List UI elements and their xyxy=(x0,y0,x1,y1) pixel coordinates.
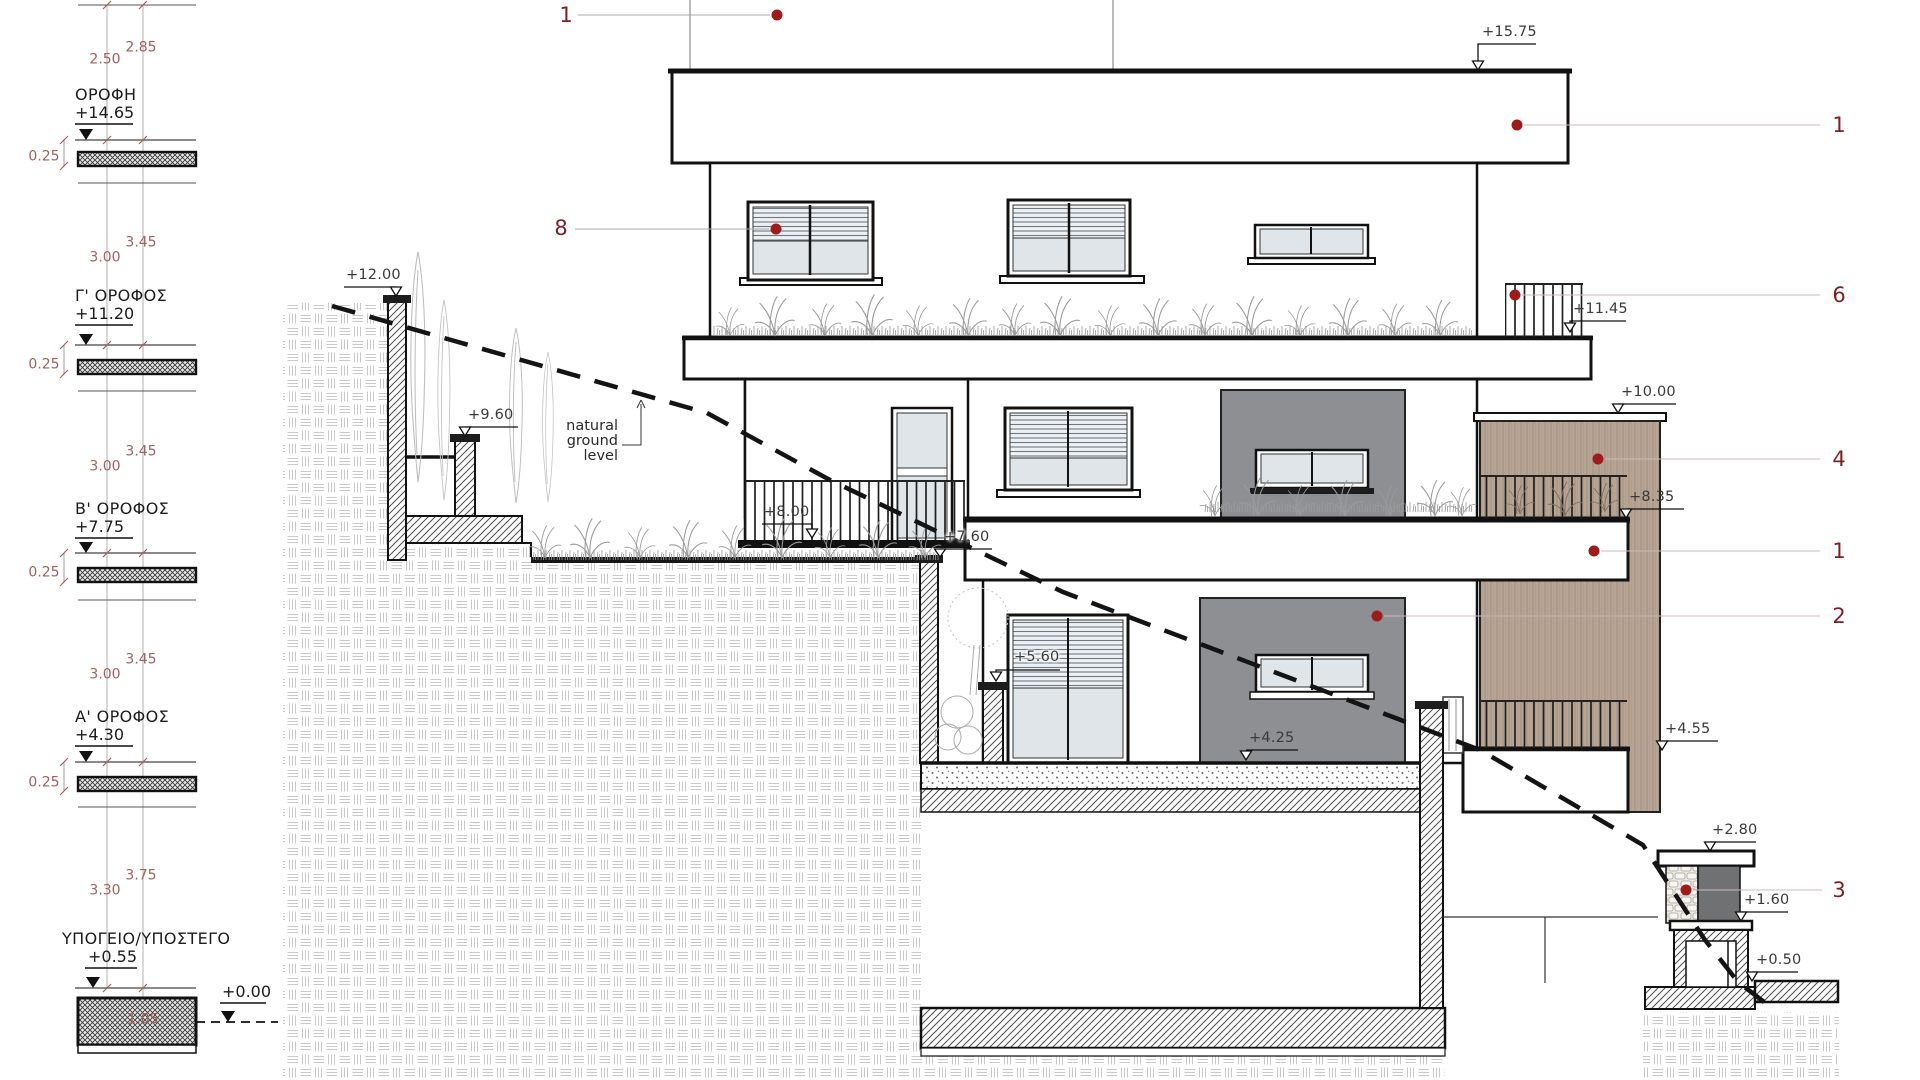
dim-slab-3: 0.25 xyxy=(28,566,59,581)
ref-label-1b: 1 xyxy=(1832,540,1845,562)
level-name-base: ΥΠΟΓΕΙΟ/ΥΠΟΣΤΕΓΟ xyxy=(62,931,230,948)
marker-8-00: +8.00 xyxy=(764,505,809,520)
ref-dot-panel xyxy=(1372,611,1383,622)
ngl-line-1: natural xyxy=(538,419,618,434)
ref-dot-railing xyxy=(1510,290,1521,301)
ref-label-2: 2 xyxy=(1832,605,1845,627)
marker-7-60: +7.60 xyxy=(944,530,989,545)
marker-12-00: +12.00 xyxy=(346,268,401,283)
ref-dot-roof xyxy=(772,10,783,21)
window-top-mid xyxy=(1000,200,1144,283)
level-elev-base: +0.55 xyxy=(88,949,137,966)
level-name-g: Γ' ΟΡΟΦΟΣ xyxy=(75,288,167,305)
ref-dot-screen xyxy=(1593,454,1604,465)
marker-0-50: +0.50 xyxy=(1756,953,1801,968)
marker-4-25: +4.25 xyxy=(1249,731,1294,746)
window-top-left xyxy=(740,202,882,285)
ref-dot-entrance xyxy=(1681,885,1692,896)
marker-2-80: +2.80 xyxy=(1712,823,1757,838)
ref-label-4: 4 xyxy=(1832,448,1845,470)
dim-3-00-c: 3.00 xyxy=(89,668,120,683)
entrance-structure xyxy=(1645,851,1838,1009)
ref-dot-window xyxy=(771,224,782,235)
roof-slab xyxy=(668,70,1572,163)
ref-dot-slab xyxy=(1589,546,1600,557)
window-third xyxy=(997,408,1140,497)
dim-3-45-a: 3.45 xyxy=(125,236,156,251)
ref-label-3: 3 xyxy=(1832,879,1845,901)
dim-slab-4: 0.25 xyxy=(28,776,59,791)
ground-floor-slab xyxy=(921,763,1443,812)
ref-label-top-1: 1 xyxy=(559,4,572,26)
dim-2-50: 2.50 xyxy=(89,53,120,68)
level-name-b: Β' ΟΡΟΦΟΣ xyxy=(75,501,169,518)
building-section-drawing: ΟΡΟΦΗ +14.65 Γ' ΟΡΟΦΟΣ +11.20 Β' ΟΡΟΦΟΣ … xyxy=(0,0,1920,1080)
datum-label: +0.00 xyxy=(222,984,271,1001)
natural-ground-level-label: natural ground level xyxy=(538,419,618,465)
balcony-slab-roof-garden xyxy=(682,337,1593,379)
marker-8-35: +8.35 xyxy=(1629,490,1674,505)
marker-1-60: +1.60 xyxy=(1744,893,1789,908)
dim-3-00-a: 3.00 xyxy=(89,251,120,266)
level-name-orofi: ΟΡΟΦΗ xyxy=(75,87,136,104)
ngl-leader xyxy=(622,400,645,445)
railing-screen-lower xyxy=(1480,700,1627,748)
ref-label-1a: 1 xyxy=(1832,114,1845,136)
marker-9-60: +9.60 xyxy=(468,408,513,423)
dim-3-75: 3.75 xyxy=(125,869,156,884)
ngl-line-2: ground xyxy=(538,434,618,449)
dim-slab-5: 1.05 xyxy=(127,1013,158,1028)
ngl-line-3: level xyxy=(538,449,618,464)
marker-11-45: +11.45 xyxy=(1573,302,1628,317)
dim-3-45-c: 3.45 xyxy=(125,653,156,668)
dim-3-30: 3.30 xyxy=(89,884,120,899)
marker-5-60: +5.60 xyxy=(1014,650,1059,665)
dim-slab-1: 0.25 xyxy=(28,150,59,165)
datum-marker xyxy=(196,1003,278,1022)
balcony-slab-low xyxy=(1461,748,1630,812)
dim-3-45-b: 3.45 xyxy=(125,445,156,460)
dim-2-85: 2.85 xyxy=(125,41,156,56)
ref-dot-parapet xyxy=(1512,120,1523,131)
window-gray-upper xyxy=(1250,450,1374,494)
balcony-slab-mid xyxy=(963,518,1630,580)
dim-slab-2: 0.25 xyxy=(28,358,59,373)
window-top-small xyxy=(1248,225,1375,264)
level-name-a: Α' ΟΡΟΦΟΣ xyxy=(75,709,169,726)
marker-4-55: +4.55 xyxy=(1665,722,1710,737)
door-second xyxy=(1008,615,1128,763)
foundation xyxy=(921,1008,1445,1056)
level-elev-g: +11.20 xyxy=(75,306,134,323)
ref-label-6: 6 xyxy=(1832,284,1845,306)
dim-3-00-b: 3.00 xyxy=(89,460,120,475)
marker-15-75: +15.75 xyxy=(1482,25,1537,40)
level-elev-a: +4.30 xyxy=(75,727,124,744)
ref-label-8: 8 xyxy=(554,217,567,239)
window-gray-lower xyxy=(1250,655,1374,699)
level-elev-b: +7.75 xyxy=(75,519,124,536)
marker-10-00: +10.00 xyxy=(1621,385,1676,400)
level-elev-orofi: +14.65 xyxy=(75,105,134,122)
